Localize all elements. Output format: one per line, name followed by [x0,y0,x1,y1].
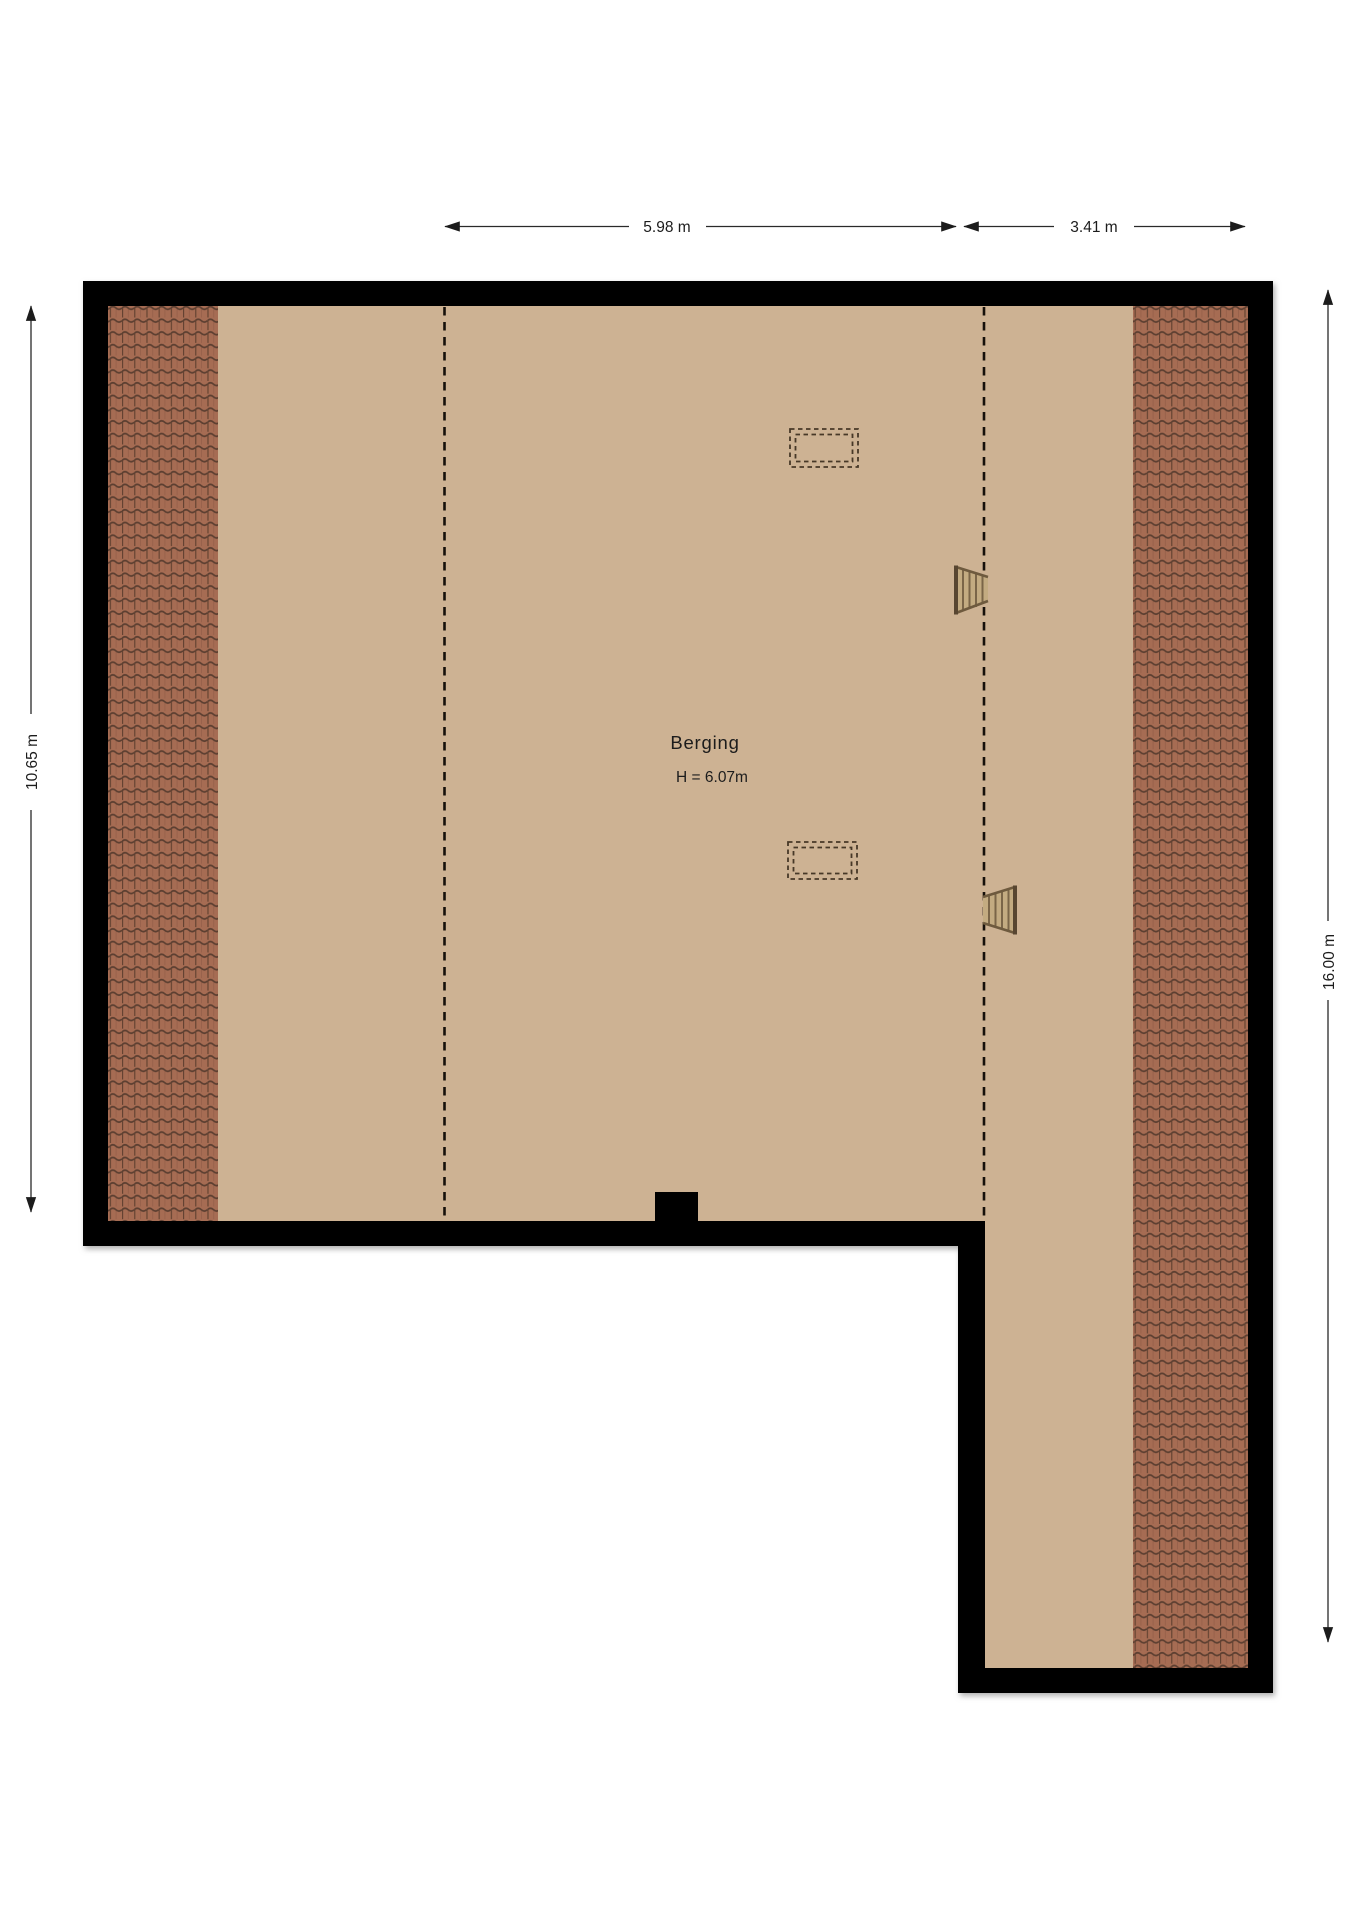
dimension-top-second: 3.41 m [964,219,1245,236]
dimension-left: 10.65 m [24,306,41,1212]
roof-tile-band-left [108,306,218,1221]
dimension-top-second-label: 3.41 m [1070,219,1117,236]
room-height-label: H = 6.07m [676,769,748,786]
floor-plan-canvas: 5.98 m 3.41 m 10.65 m 16.00 m Berging H … [0,0,1358,1920]
roof-tile-band-right [1133,306,1248,1668]
dimension-top-first-label: 5.98 m [643,219,690,236]
dimension-left-label: 10.65 m [24,734,41,790]
building [83,281,1273,1693]
dimension-right-label: 16.00 m [1321,934,1338,990]
room-name-label: Berging [670,732,739,753]
floor-area [108,306,1248,1668]
wall-stub [655,1192,698,1246]
dimension-top-first: 5.98 m [445,219,956,236]
dimension-right: 16.00 m [1321,290,1338,1642]
floor-plan-page: 5.98 m 3.41 m 10.65 m 16.00 m Berging H … [0,0,1358,1920]
